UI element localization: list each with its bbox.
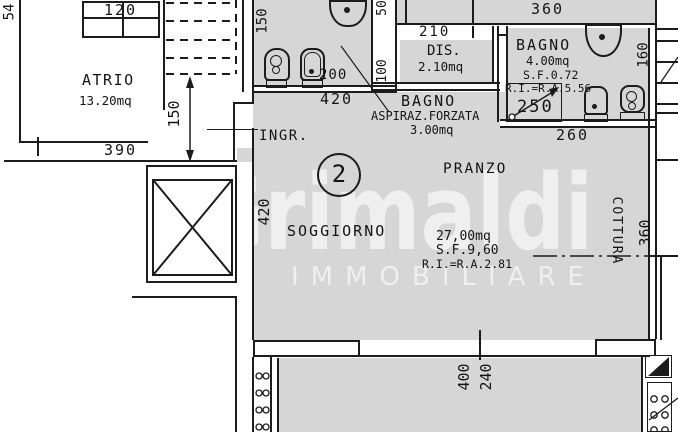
room-label-bagno: BAGNO (516, 38, 571, 54)
terrace-left-edge (277, 358, 279, 432)
room-label-soggiorno: SOGGIORNO (287, 224, 386, 240)
dim-250: 250 (517, 99, 554, 117)
elevator-car (152, 179, 233, 276)
dim-160: 160 (637, 42, 652, 67)
ingresso-leader (207, 129, 258, 130)
dim-260: 260 (556, 128, 589, 144)
room-area-atrio: 13.20mq (79, 94, 132, 107)
bidet-base-2 (620, 112, 645, 120)
stair-dashed-tread (166, 39, 236, 41)
dim-120: 120 (104, 3, 137, 19)
wall-corridoio (4, 160, 237, 162)
bidet-drain (272, 66, 280, 74)
dim-50: 50 (376, 0, 390, 16)
room-area-bagno: 4.00mq (526, 55, 569, 68)
wall-bagno-vent-right-b (395, 0, 397, 92)
stair-dashed-tread (166, 73, 236, 75)
room-ri-bagno: R.I.=R.A.5.56 (505, 83, 591, 95)
sink-drain (344, 7, 350, 13)
bidet-base (266, 80, 287, 88)
dim-tick-400-240 (479, 330, 481, 360)
room-sf-soggiorno: S.F.9,60 (436, 244, 499, 258)
stair-right-rung (657, 40, 678, 42)
stair-right-rung (657, 82, 678, 84)
room-label-dis: DIS. (427, 44, 461, 59)
dim-arrowhead-up (186, 76, 194, 88)
wall-bagno-left-cross (497, 34, 508, 36)
dim-390: 390 (104, 143, 137, 159)
sink-drain-2 (599, 34, 605, 40)
bidet-drain-2 (628, 102, 636, 110)
wall-bagno-vent-right-a (371, 0, 373, 92)
room-area-soggiorno: 27,00mq (436, 230, 491, 244)
unit-number: 2 (332, 162, 346, 187)
room-label-atrio: ATRIO (82, 73, 135, 89)
wall-right-outer (655, 0, 657, 339)
wall-bagno-left-a (497, 26, 499, 122)
stair-right-rung (657, 61, 678, 63)
wc-drain-2 (592, 104, 597, 109)
stair-dashed-tread (166, 2, 236, 4)
wall-below-elevator-h (132, 296, 237, 298)
room-label-pranzo: PRANZO (443, 162, 507, 177)
wall-cottura-right (660, 256, 662, 340)
stair-right-rung (657, 112, 678, 114)
wall-shaft-side (242, 0, 244, 92)
wall-apartment-left-b (252, 128, 254, 340)
wall-stub-top-a (405, 0, 407, 23)
dim-150-scala: 150 (167, 100, 183, 127)
stair-dashed-tread (166, 20, 236, 22)
stair-dashed-tread (166, 57, 236, 59)
wc-base-2 (584, 114, 608, 122)
stair-dashed-edge (235, 0, 237, 74)
wall-below-elevator-v (235, 296, 237, 432)
stair-right-rung (657, 103, 678, 105)
dim-420-soggiorno: 420 (257, 198, 273, 225)
room-area-bagno-vent: 3.00mq (410, 124, 453, 137)
wall-right-inner (648, 28, 650, 339)
dim-tick-210 (472, 26, 474, 38)
room-ri-soggiorno: R.I.=R.A.2.81 (422, 258, 512, 270)
dim-210: 210 (419, 25, 450, 40)
dim-360-destra: 360 (638, 219, 654, 246)
wall-dis-bottom-a (373, 82, 500, 84)
stair-right-rung (657, 28, 678, 30)
door-niche-h (233, 102, 254, 104)
room-fill-top-strip (397, 0, 656, 23)
terrace-threshold (360, 355, 650, 357)
floor-plan: Grimaldi IMMOBILIARE (0, 0, 678, 432)
room-label-bagno-vent: BAGNO (401, 94, 456, 110)
room-sf-bagno: S.F.0.72 (523, 69, 578, 81)
wall-section-box (645, 355, 672, 378)
dim-54: 54 (3, 4, 18, 21)
wall-dis-bottom-b (373, 89, 500, 91)
room-area-dis: 2.10mq (418, 60, 463, 73)
radiator-box-right (647, 382, 672, 432)
wall-dis-right (492, 26, 494, 84)
dim-100: 100 (376, 59, 390, 82)
stair-edge (163, 0, 165, 110)
cottura-line-ext (650, 255, 678, 257)
room-label-ingresso: INGR. (259, 129, 309, 144)
room-note-bagno-vent: ASPIRAZ.FORZATA (371, 110, 479, 123)
bidet-bowl-2 (626, 91, 637, 102)
wall-stub-fill (237, 148, 253, 162)
dim-150-bagno: 150 (256, 8, 271, 33)
wall-band-soggiorno-sud (253, 340, 360, 357)
dim-400: 400 (457, 363, 473, 390)
dim-200: 200 (319, 68, 347, 83)
wall-atrio-left (19, 0, 21, 142)
room-label-cottura: COTTURA (609, 197, 623, 266)
dim-tick-390 (37, 137, 39, 156)
wall-stub-top-b (472, 0, 474, 23)
wc-drain (309, 69, 314, 74)
dim-420-bagno: 420 (320, 92, 353, 108)
radiator-box-left (252, 357, 272, 432)
dim-240: 240 (479, 363, 495, 390)
dim-360-alto: 360 (531, 2, 564, 18)
door-niche-v (233, 102, 235, 162)
unit-number-badge: 2 (317, 153, 361, 197)
balcony-edge-right (656, 159, 678, 161)
terrace-right-edge (641, 357, 643, 432)
